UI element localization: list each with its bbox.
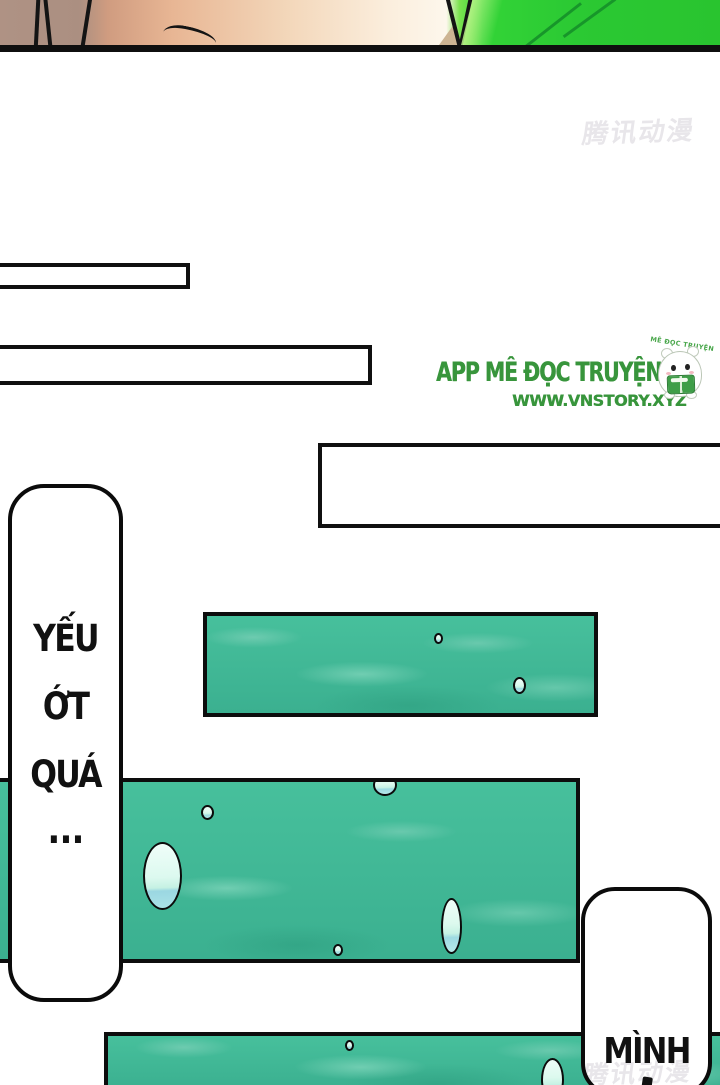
speech-ellipsis: ... <box>20 810 111 850</box>
tencent-watermark-top: 腾讯动漫 <box>580 110 698 151</box>
hair-strand-line <box>43 0 52 52</box>
speech-text: QUÁ <box>20 756 111 793</box>
eyebrow-line <box>162 22 218 50</box>
narration-box-3 <box>318 443 720 528</box>
contour-line <box>79 0 92 52</box>
narration-box-2 <box>0 345 372 385</box>
water-bubble-large <box>143 842 182 910</box>
water-droplet <box>541 1058 564 1085</box>
hair-strand-line <box>34 0 40 52</box>
mascot-blush <box>689 371 694 374</box>
mascot-eye <box>671 365 676 371</box>
leaf-vein-line <box>563 0 617 38</box>
water-bubble <box>201 805 214 820</box>
speech-text: YẾU <box>20 620 111 657</box>
water-panel-1 <box>203 612 598 717</box>
top-art-panel <box>0 0 720 52</box>
mascot-book-page <box>671 378 688 383</box>
mascot-eye <box>685 364 690 370</box>
mascot-book-icon <box>667 375 696 395</box>
water-bubble <box>373 778 397 796</box>
comic-page: 腾讯动漫 APP MÊ ĐỌC TRUYỆN WWW.VNSTORY.XYZ M… <box>0 0 720 1085</box>
speech-text: ỚT <box>20 688 111 725</box>
tencent-watermark-bottom: 腾讯动漫 <box>581 1052 695 1085</box>
water-bubble <box>345 1040 354 1051</box>
water-bubble <box>333 944 343 956</box>
promo-app-title: APP MÊ ĐỌC TRUYỆN <box>436 357 674 388</box>
water-bubble <box>513 677 526 694</box>
water-droplet <box>441 898 462 954</box>
narration-box-1 <box>0 263 190 289</box>
mascot-icon: MÊ ĐỌC TRUYỆN <box>650 338 710 406</box>
water-bubble <box>434 633 443 644</box>
speech-bubble-left: YẾU ỚT QUÁ ... <box>8 484 123 1002</box>
